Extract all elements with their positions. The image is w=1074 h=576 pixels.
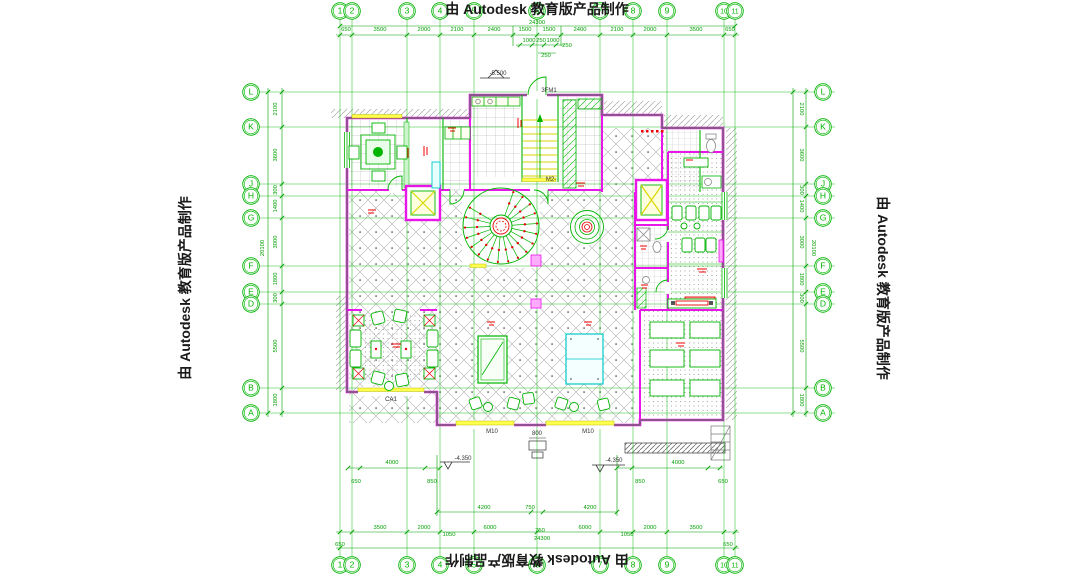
- dim-label-bottom: 2000: [644, 525, 657, 531]
- grid-bubble-label: B: [820, 383, 826, 393]
- grid-bubble-label: F: [248, 261, 253, 271]
- grid-bubble-right-D: D: [815, 296, 832, 313]
- spiral-dot: [535, 233, 537, 235]
- dim-label-right: 1800: [798, 273, 804, 286]
- spiral-dot: [487, 258, 489, 260]
- stair-direction-arrow: [537, 114, 543, 122]
- spiral-dot: [471, 246, 473, 248]
- elevator-left: [406, 186, 440, 220]
- grid-bubble-right-L: L: [815, 84, 832, 101]
- spiral-dot: [521, 236, 523, 238]
- dim-label-top: 1500: [543, 27, 556, 33]
- dim-label-top: 250: [541, 53, 551, 59]
- grid-bubble-label: B: [248, 383, 254, 393]
- dim-label-bottom: 650: [723, 542, 733, 548]
- dim-label-bottom: 6000: [484, 525, 497, 531]
- grid-bubble-label: L: [249, 87, 254, 97]
- dim-label-right: 1800: [798, 394, 804, 407]
- spiral-dot: [507, 260, 509, 262]
- grid-bubble-label: 11: [731, 9, 738, 16]
- grid-bubble-label: E: [820, 287, 826, 297]
- stair-well-blank: [462, 185, 540, 268]
- spiral-dot: [477, 233, 479, 235]
- dim-label-right: 5500: [798, 340, 804, 353]
- grid-bubble-bottom-9: 9: [659, 557, 676, 574]
- dim-label-bottom: 750: [525, 505, 535, 511]
- dim-label-top: 1500: [519, 27, 532, 33]
- watermark-left: 由 Autodesk 教育版产品制作: [177, 196, 193, 380]
- dim-label-top: 3500: [690, 27, 703, 33]
- dim-label-top: 24300: [529, 20, 545, 26]
- grid-bubble-label: J: [249, 179, 253, 189]
- dim-label-bottom: 650: [335, 542, 345, 548]
- spiral-dot: [522, 216, 524, 218]
- grid-bubble-label: D: [820, 299, 826, 309]
- grid-bubble-right-K: K: [815, 119, 832, 136]
- spiral-dot: [480, 239, 482, 241]
- dim-label-bottom: 4200: [584, 505, 597, 511]
- dim-label-bottom: 24300: [534, 536, 550, 542]
- storage-cabinet-tall: [563, 100, 576, 188]
- dim-label-bottom: 850: [635, 479, 645, 485]
- grid-bubble-label: D: [248, 299, 254, 309]
- dim-label-bottom: 3500: [690, 525, 703, 531]
- spiral-dot: [469, 207, 471, 209]
- grid-bubble-label: H: [820, 191, 826, 201]
- spiral-dot: [529, 203, 531, 205]
- dim-label-bottom: 3500: [374, 525, 387, 531]
- round-feature-blank: [569, 209, 605, 245]
- spiral-dot: [479, 213, 481, 215]
- dim-label-top: 1000: [547, 38, 560, 44]
- dim-label-left: 300: [273, 293, 279, 303]
- grid-bubble-label: 9: [665, 560, 670, 570]
- dim-label-right: 2100: [798, 103, 804, 116]
- spiral-dot: [523, 230, 525, 232]
- grid-bubble-label: G: [820, 213, 827, 223]
- dim-label-top: 1000: [523, 38, 536, 44]
- billiard-table-cyan: [566, 334, 603, 384]
- plan-label: -5.500: [489, 71, 507, 77]
- grid-bubble-bottom-3: 3: [399, 557, 416, 574]
- spiral-dot: [517, 257, 519, 259]
- dim-label-bottom: 850: [427, 479, 437, 485]
- spiral-dot: [491, 247, 493, 249]
- watermark-top: 由 Autodesk 教育版产品制作: [445, 1, 629, 17]
- grid-bubble-label: K: [820, 122, 826, 132]
- grid-bubble-label: 2: [350, 6, 355, 16]
- grid-bubble-label: 3: [405, 560, 410, 570]
- grid-bubble-top-11: 11: [727, 3, 744, 20]
- billiard-table-green: [478, 336, 507, 383]
- bath-cabinet: [637, 288, 646, 308]
- dim-label-left: 1800: [273, 273, 279, 286]
- grid-bubble-right-H: H: [815, 188, 832, 205]
- grid-bubble-bottom-2: 2: [344, 557, 361, 574]
- dim-label-top: 250: [536, 38, 546, 44]
- spiral-dot: [517, 242, 519, 244]
- plan-label: -4.350: [605, 458, 623, 464]
- grid-bubble-label: A: [820, 408, 826, 418]
- grid-bubble-right-G: G: [815, 210, 832, 227]
- dim-label-bottom: 650: [718, 479, 728, 485]
- dim-label-left: 300: [273, 185, 279, 195]
- grid-bubble-label: 1: [338, 6, 343, 16]
- dim-label-top: 2000: [644, 27, 657, 33]
- dim-label-bottom: 2000: [418, 525, 431, 531]
- grid-bubble-right-F: F: [815, 258, 832, 275]
- spiral-dot: [534, 212, 536, 214]
- grid-bubble-label: 11: [731, 563, 738, 570]
- grid-bubble-left-F: F: [243, 258, 260, 275]
- dim-label-top: 250: [562, 43, 572, 49]
- dim-label-top: 2400: [574, 27, 587, 33]
- plan-label: CA1: [385, 397, 397, 403]
- dim-label-top: 2100: [611, 27, 624, 33]
- dim-label-top: 3500: [374, 27, 387, 33]
- spiral-dot: [464, 226, 466, 228]
- grid-bubble-label: 4: [438, 560, 443, 570]
- grid-bubble-label: 8: [631, 6, 636, 16]
- spiral-dot: [512, 191, 514, 193]
- dim-label-bottom: 6000: [579, 525, 592, 531]
- elevator-right: [636, 180, 667, 220]
- dim-label-bottom: 4000: [386, 460, 399, 466]
- dim-label-top: 2400: [488, 27, 501, 33]
- spiral-dot: [476, 226, 478, 228]
- dim-label-left: 5500: [273, 340, 279, 353]
- floor-plan-canvas[interactable]: 11223344556677889910101111LLKKJJHHGGFFEE…: [0, 0, 1074, 576]
- dim-label-top: 2000: [418, 27, 431, 33]
- spiral-dot: [525, 251, 527, 253]
- grid-bubble-label: H: [248, 191, 254, 201]
- watermark-right: 由 Autodesk 教育版产品制作: [875, 196, 891, 380]
- dim-label-left: 3600: [273, 149, 279, 162]
- dim-label-bottom: 750: [535, 528, 545, 534]
- grid-bubble-label: F: [820, 261, 825, 271]
- spiral-dot: [477, 219, 479, 221]
- dim-label-right: 20100: [810, 240, 816, 256]
- grid-bubble-label: 8: [631, 560, 636, 570]
- dim-label-left: 20100: [260, 240, 266, 256]
- dim-label-left: 1400: [273, 200, 279, 213]
- spiral-dot: [497, 261, 499, 263]
- dim-label-right: 3000: [798, 236, 804, 249]
- spiral-dot: [531, 242, 533, 244]
- plan-label: M2-: [546, 177, 556, 183]
- straight-stair: [523, 114, 557, 178]
- dim-label-left: 3000: [273, 236, 279, 249]
- grid-bubble-label: A: [248, 408, 254, 418]
- grid-bubble-top-3: 3: [399, 3, 416, 20]
- spiral-dot: [508, 202, 510, 204]
- dim-label-right: 1400: [798, 200, 804, 213]
- dim-label-right: 300: [798, 185, 804, 195]
- plan-label: 800: [532, 431, 543, 437]
- grid-bubble-label: 9: [665, 6, 670, 16]
- grid-bubble-right-A: A: [815, 405, 832, 422]
- grid-bubble-label: E: [248, 287, 254, 297]
- grid-bubble-left-K: K: [243, 119, 260, 136]
- spiral-dot: [505, 248, 507, 250]
- dim-label-top: 2100: [451, 27, 464, 33]
- plan-label: -4.350: [454, 456, 472, 462]
- dim-label-bottom: 1050: [621, 532, 634, 538]
- grid-bubble-label: J: [821, 179, 825, 189]
- spiral-dot: [511, 246, 513, 248]
- storage-cabinet-top: [578, 99, 602, 109]
- grid-bubble-label: 3: [405, 6, 410, 16]
- dim-label-top: 650: [725, 27, 735, 33]
- spiral-dot: [521, 196, 523, 198]
- spiral-dot: [524, 223, 526, 225]
- grid-bubble-right-B: B: [815, 380, 832, 397]
- grid-bubble-left-G: G: [243, 210, 260, 227]
- kitchen-floor: [472, 97, 520, 177]
- spiral-dot: [465, 216, 467, 218]
- grid-bubble-label: K: [248, 122, 254, 132]
- grid-bubble-left-A: A: [243, 405, 260, 422]
- spiral-dot: [514, 206, 516, 208]
- grid-bubble-left-H: H: [243, 188, 260, 205]
- watermark-bottom: 由 Autodesk 教育版产品制作: [445, 552, 629, 568]
- plan-label: 3FM1: [541, 88, 557, 94]
- dim-label-left: 2100: [273, 103, 279, 116]
- dim-label-bottom: 4200: [478, 505, 491, 511]
- grid-bubble-bottom-11: 11: [727, 557, 744, 574]
- spiral-dot: [536, 222, 538, 224]
- dim-label-right: 300: [798, 293, 804, 303]
- dim-label-bottom: 4000: [672, 460, 685, 466]
- dim-label-bottom: 650: [351, 479, 361, 485]
- grid-bubble-label: G: [248, 213, 255, 223]
- plan-label: M10: [582, 429, 594, 435]
- dim-label-bottom: 1050: [443, 532, 456, 538]
- grid-bubble-label: 2: [350, 560, 355, 570]
- grid-bubble-label: 4: [438, 6, 443, 16]
- grid-bubble-left-L: L: [243, 84, 260, 101]
- cad-viewport[interactable]: 11223344556677889910101111LLKKJJHHGGFFEE…: [0, 0, 1074, 576]
- spiral-dot: [498, 249, 500, 251]
- spiral-dot: [478, 253, 480, 255]
- terrace-step: [625, 443, 725, 453]
- grid-bubble-label: 1: [338, 560, 343, 570]
- grid-bubble-left-B: B: [243, 380, 260, 397]
- spiral-dot: [519, 210, 521, 212]
- dim-label-left: 1800: [273, 394, 279, 407]
- grid-bubble-top-9: 9: [659, 3, 676, 20]
- step-detail-rects: [529, 441, 546, 458]
- spiral-dot: [466, 237, 468, 239]
- grid-bubble-label: L: [821, 87, 826, 97]
- grid-bubble-top-2: 2: [344, 3, 361, 20]
- dim-label-right: 3600: [798, 149, 804, 162]
- grid-bubble-left-D: D: [243, 296, 260, 313]
- plan-label: M10: [486, 429, 498, 435]
- kitchen-sink-counter: [432, 162, 440, 188]
- dim-label-top: 650: [341, 27, 351, 33]
- spiral-dot: [485, 244, 487, 246]
